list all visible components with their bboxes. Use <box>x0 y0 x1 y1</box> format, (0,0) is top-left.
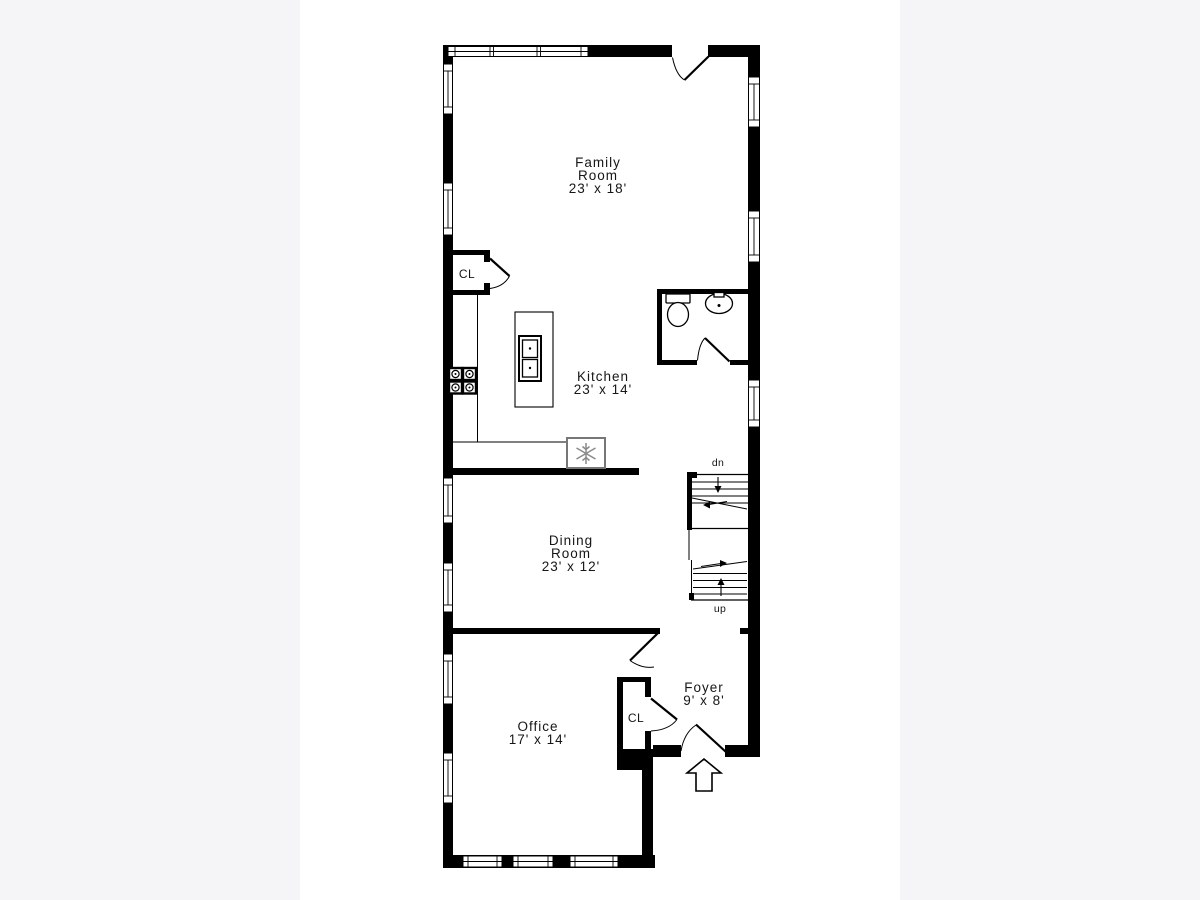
window-left-6 <box>444 753 453 803</box>
foyer-dims: 9' x 8' <box>683 693 724 708</box>
floor-plan-page: Family Room 23' x 18' Kitchen 23' x 14' … <box>0 0 1200 900</box>
kitchen-island <box>515 312 553 407</box>
stove-icon <box>449 368 476 394</box>
window-bottom-2 <box>513 856 553 867</box>
window-right-3 <box>749 380 760 427</box>
window-left-3 <box>444 478 453 523</box>
window-right-2 <box>749 211 760 262</box>
window-bottom-1 <box>463 856 502 867</box>
stairs-down-label: dn <box>712 457 724 469</box>
foyer-closet-label: CL <box>628 711 644 725</box>
refrigerator-icon <box>567 438 605 468</box>
window-left-2 <box>444 183 453 235</box>
floor-plan-image: Family Room 23' x 18' Kitchen 23' x 14' … <box>0 0 1200 900</box>
kitchen-dims: 23' x 14' <box>574 382 632 397</box>
window-left-4 <box>444 563 453 612</box>
stairs-up-label: up <box>714 603 726 615</box>
window-top-family <box>448 47 588 57</box>
office-dims: 17' x 14' <box>509 732 567 747</box>
window-right-1 <box>749 77 760 127</box>
family-room-dims: 23' x 18' <box>569 181 627 196</box>
top-door-opening <box>672 44 708 58</box>
window-left-5 <box>444 654 453 704</box>
window-left-1 <box>444 64 453 114</box>
toilet-icon <box>666 294 690 327</box>
window-bottom-3 <box>570 856 618 867</box>
kitchen-closet-label: CL <box>459 267 475 281</box>
dining-room-dims: 23' x 12' <box>542 559 600 574</box>
bath-sink-icon <box>706 293 733 314</box>
